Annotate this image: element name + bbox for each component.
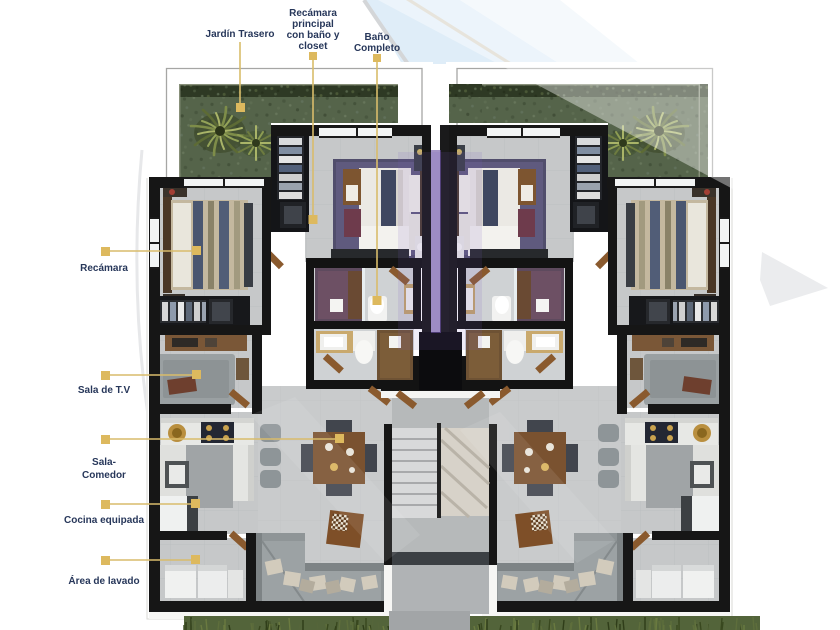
- svg-text:Recámara: Recámara: [80, 263, 128, 274]
- svg-text:Área de lavado: Área de lavado: [68, 574, 139, 587]
- svg-text:Cocina equipada: Cocina equipada: [64, 515, 144, 526]
- svg-text:Recámara: Recámara: [289, 8, 337, 19]
- svg-text:Sala de T.V: Sala de T.V: [78, 385, 131, 396]
- svg-text:Baño: Baño: [365, 32, 390, 43]
- svg-text:Jardín Trasero: Jardín Trasero: [206, 29, 275, 40]
- svg-text:principal: principal: [292, 19, 334, 30]
- svg-text:Sala-: Sala-: [92, 457, 116, 468]
- svg-text:closet: closet: [299, 41, 329, 52]
- svg-text:Comedor: Comedor: [82, 470, 126, 481]
- svg-text:con baño y: con baño y: [287, 30, 340, 41]
- svg-text:Completo: Completo: [354, 43, 400, 54]
